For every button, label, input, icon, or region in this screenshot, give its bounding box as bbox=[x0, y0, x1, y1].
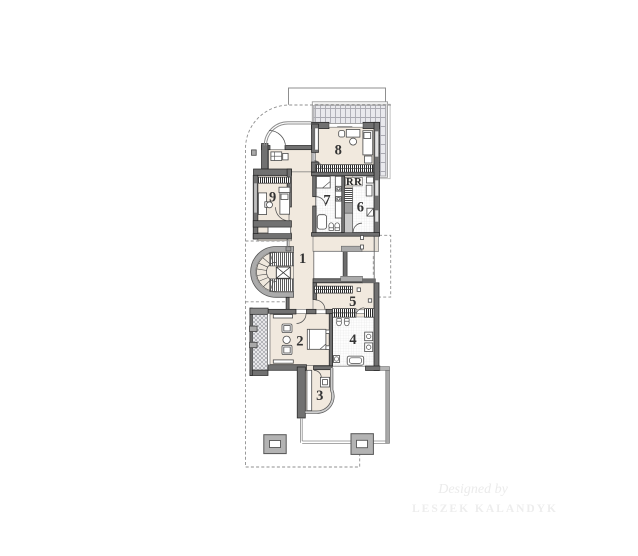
svg-text:6: 6 bbox=[357, 200, 364, 216]
svg-text:9: 9 bbox=[269, 189, 276, 205]
svg-text:5: 5 bbox=[349, 294, 356, 310]
svg-text:4: 4 bbox=[349, 332, 356, 348]
svg-text:3: 3 bbox=[316, 388, 323, 404]
svg-text:1: 1 bbox=[299, 251, 306, 267]
svg-text:7: 7 bbox=[323, 193, 330, 209]
svg-text:8: 8 bbox=[335, 143, 342, 159]
svg-text:LESZEK KALANDYK: LESZEK KALANDYK bbox=[412, 503, 558, 515]
svg-text:2: 2 bbox=[296, 333, 303, 349]
svg-text:RR: RR bbox=[346, 177, 362, 188]
svg-text:Designed by: Designed by bbox=[437, 482, 508, 497]
